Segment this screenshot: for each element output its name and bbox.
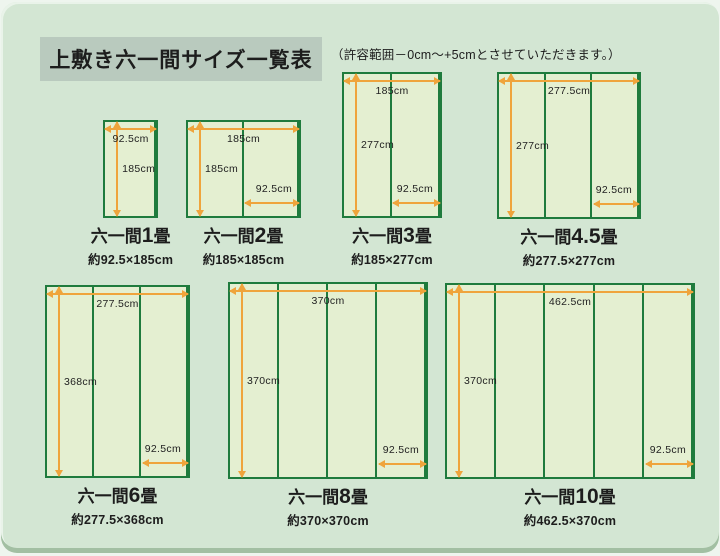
diagram-4-5jo: 277.5cm 277cm 92.5cm 六一間4.5畳 約277.5×277c…	[497, 72, 641, 269]
diagram-title-prefix: 六一間	[520, 228, 571, 247]
diagram-title-number: 1	[142, 224, 154, 247]
diagram-title-number: 3	[403, 224, 415, 247]
diagram-title-number: 2	[255, 224, 267, 247]
mat-outline: 277.5cm 368cm 92.5cm	[45, 285, 190, 478]
tatami-panel	[595, 285, 644, 477]
diagram-title: 六一間2畳	[204, 224, 284, 247]
panel-width-label: 92.5cm	[145, 443, 181, 455]
mat-outline: 185cm 277cm 92.5cm	[342, 72, 442, 218]
diagram-title-number: 6	[129, 484, 141, 507]
panel-width-arrow-icon	[379, 463, 426, 465]
width-dimension-arrow-icon	[188, 128, 299, 130]
diagram-caption: 約277.5×277cm	[523, 250, 615, 269]
panel-width-arrow-icon	[143, 462, 188, 464]
width-dimension-label: 185cm	[188, 133, 299, 145]
panel-width-arrow-icon	[245, 202, 299, 204]
diagram-title: 六一間10畳	[524, 485, 615, 508]
height-dimension-label: 370cm	[464, 375, 497, 387]
diagram-title-unit: 畳	[351, 488, 368, 507]
diagram-caption: 約462.5×370cm	[524, 510, 616, 529]
width-dimension-label: 185cm	[344, 85, 440, 97]
diagram-3jo: 185cm 277cm 92.5cm 六一間3畳 約185×277cm	[342, 72, 442, 268]
diagram-8jo: 370cm 370cm 92.5cm 六一間8畳 約370×370cm	[228, 282, 428, 529]
diagram-title: 六一間3畳	[352, 224, 432, 247]
diagram-title-number: 4.5	[571, 225, 600, 248]
diagram-10jo: 462.5cm 370cm 92.5cm 六一間10畳 約462.5×370cm	[445, 283, 695, 529]
diagram-title: 六一間6畳	[78, 484, 158, 507]
tatami-panel	[496, 285, 545, 477]
diagram-title-prefix: 六一間	[91, 227, 142, 246]
diagram-title-prefix: 六一間	[288, 488, 339, 507]
page-title: 上敷き六一間サイズ一覧表	[49, 44, 312, 74]
tatami-panel	[94, 287, 141, 476]
mat-outline: 277.5cm 277cm 92.5cm	[497, 72, 641, 219]
tolerance-note: （許容範囲－0cm～+5cmとさせていただきます。）	[331, 44, 621, 63]
mat-outline: 92.5cm 185cm	[103, 120, 158, 218]
diagram-1jo: 92.5cm 185cm 六一間1畳 約92.5×185cm	[88, 120, 173, 268]
diagram-title-unit: 畳	[266, 227, 283, 246]
width-dimension-label: 277.5cm	[499, 85, 639, 97]
diagram-title-prefix: 六一間	[352, 227, 403, 246]
panel-width-label: 92.5cm	[256, 183, 292, 195]
height-dimension-label: 185cm	[122, 163, 155, 175]
width-dimension-arrow-icon	[47, 293, 188, 295]
diagram-caption: 約185×185cm	[203, 249, 285, 268]
diagram-title-number: 10	[575, 485, 598, 508]
diagram-6jo: 277.5cm 368cm 92.5cm 六一間6畳 約277.5×368cm	[45, 285, 190, 528]
diagram-title-unit: 畳	[601, 228, 618, 247]
diagram-title: 六一間4.5畳	[520, 225, 617, 248]
diagram-title-prefix: 六一間	[204, 227, 255, 246]
width-dimension-arrow-icon	[105, 128, 156, 130]
tatami-panel	[545, 285, 594, 477]
width-dimension-arrow-icon	[447, 291, 693, 293]
panel-width-label: 92.5cm	[397, 183, 433, 195]
diagram-caption: 約92.5×185cm	[88, 249, 173, 268]
height-dimension-label: 277cm	[361, 139, 394, 151]
width-dimension-label: 277.5cm	[47, 298, 188, 310]
panel-width-label: 92.5cm	[596, 184, 632, 196]
diagram-caption: 約185×277cm	[351, 249, 433, 268]
tatami-panel	[328, 284, 377, 477]
height-dimension-label: 185cm	[205, 163, 238, 175]
height-dimension-arrow-icon	[241, 284, 243, 477]
width-dimension-label: 370cm	[230, 295, 426, 307]
panel-width-label: 92.5cm	[650, 444, 686, 456]
diagram-caption: 約277.5×368cm	[71, 509, 163, 528]
mat-outline: 370cm 370cm 92.5cm	[228, 282, 428, 479]
height-dimension-label: 370cm	[247, 375, 280, 387]
diagram-title-unit: 畳	[599, 488, 616, 507]
panel-width-arrow-icon	[393, 202, 440, 204]
diagram-2jo: 185cm 185cm 92.5cm 六一間2畳 約185×185cm	[186, 120, 301, 268]
panel-width-label: 92.5cm	[383, 444, 419, 456]
width-dimension-arrow-icon	[230, 290, 426, 292]
width-dimension-arrow-icon	[344, 80, 440, 82]
height-dimension-label: 277cm	[516, 140, 549, 152]
diagram-title-number: 8	[339, 485, 351, 508]
diagram-caption: 約370×370cm	[287, 510, 369, 529]
width-dimension-label: 462.5cm	[447, 296, 693, 308]
panel-width-arrow-icon	[646, 463, 693, 465]
tatami-panel	[279, 284, 328, 477]
height-dimension-label: 368cm	[64, 376, 97, 388]
diagram-title-prefix: 六一間	[524, 488, 575, 507]
panel-width-arrow-icon	[594, 203, 639, 205]
height-dimension-arrow-icon	[458, 285, 460, 477]
diagram-title-unit: 畳	[415, 227, 432, 246]
mat-outline: 185cm 185cm 92.5cm	[186, 120, 301, 218]
diagram-title-unit: 畳	[153, 227, 170, 246]
width-dimension-label: 92.5cm	[105, 133, 156, 145]
diagram-title: 六一間1畳	[91, 224, 171, 247]
mat-outline: 462.5cm 370cm 92.5cm	[445, 283, 695, 479]
diagram-title-prefix: 六一間	[78, 487, 129, 506]
diagram-title: 六一間8畳	[288, 485, 368, 508]
width-dimension-arrow-icon	[499, 80, 639, 82]
height-dimension-arrow-icon	[58, 287, 60, 476]
diagram-title-unit: 畳	[140, 487, 157, 506]
page-title-box: 上敷き六一間サイズ一覧表	[40, 37, 322, 81]
